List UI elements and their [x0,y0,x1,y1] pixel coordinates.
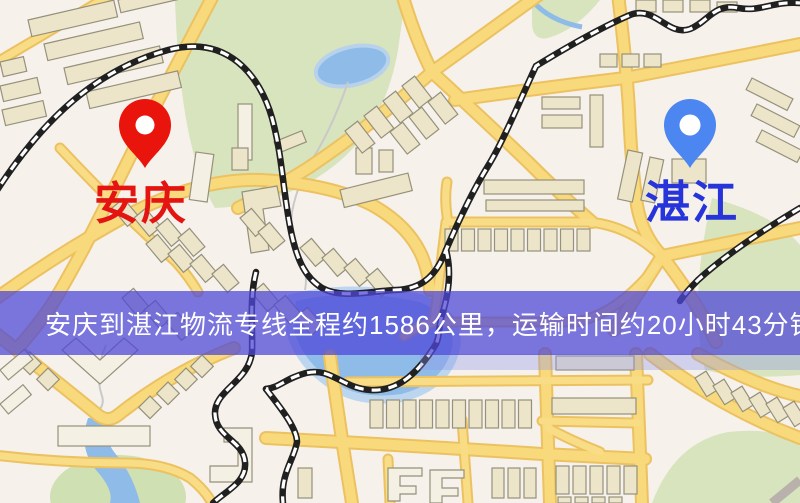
map-canvas [0,0,800,503]
zhanjiang-label: 湛江 [645,180,739,225]
route-banner-text: 安庆到湛江物流专线全程约1586公里，运输时间约20小时43分钟. [45,305,800,342]
anqing-label: 安庆 [94,181,188,226]
route-banner: 安庆到湛江物流专线全程约1586公里，运输时间约20小时43分钟. [0,291,800,355]
pale-tint-strip [420,354,800,370]
logistics-route-map: 安庆 湛江 安庆到湛江物流专线全程约1586公里，运输时间约20小时43分钟. [0,0,800,503]
